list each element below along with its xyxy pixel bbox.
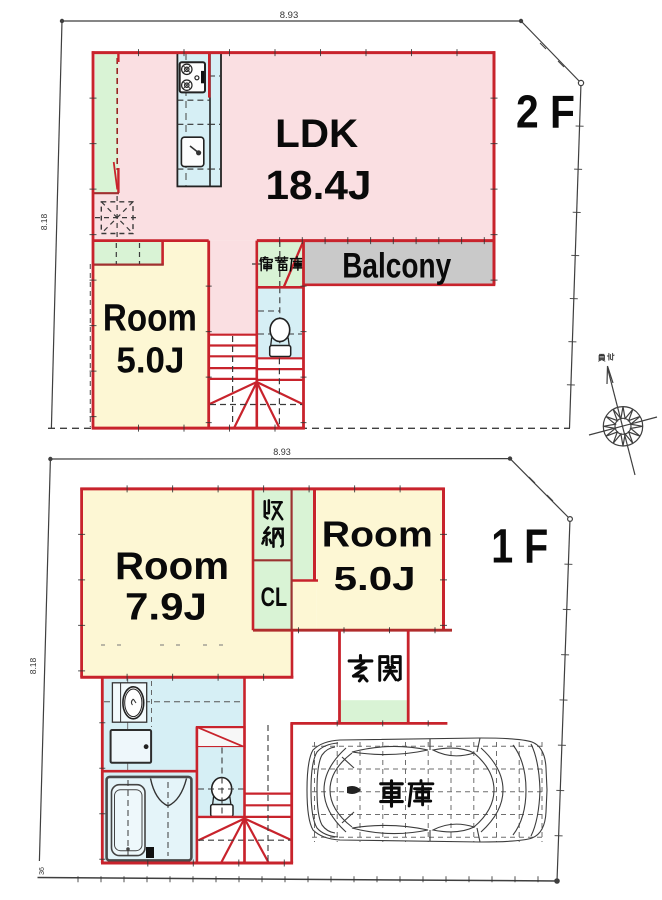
svg-text:Room: Room xyxy=(103,297,197,339)
svg-text:CL: CL xyxy=(261,582,288,612)
svg-text:8.93: 8.93 xyxy=(273,447,291,457)
svg-text:Room: Room xyxy=(115,545,229,588)
svg-text:LDK: LDK xyxy=(275,112,358,156)
svg-text:7.9J: 7.9J xyxy=(125,586,207,628)
svg-text:5.0J: 5.0J xyxy=(116,340,184,381)
svg-text:Room: Room xyxy=(322,513,433,554)
svg-text:Balcony: Balcony xyxy=(342,246,451,285)
svg-text:1 F: 1 F xyxy=(491,521,548,574)
svg-text:18.4J: 18.4J xyxy=(266,162,372,208)
svg-text:8.18: 8.18 xyxy=(39,213,49,230)
svg-text:2 F: 2 F xyxy=(516,86,575,138)
svg-text:36: 36 xyxy=(39,867,46,875)
svg-text:8.18: 8.18 xyxy=(28,657,38,674)
svg-text:8.93: 8.93 xyxy=(280,10,299,21)
svg-text:5.0J: 5.0J xyxy=(334,560,416,597)
